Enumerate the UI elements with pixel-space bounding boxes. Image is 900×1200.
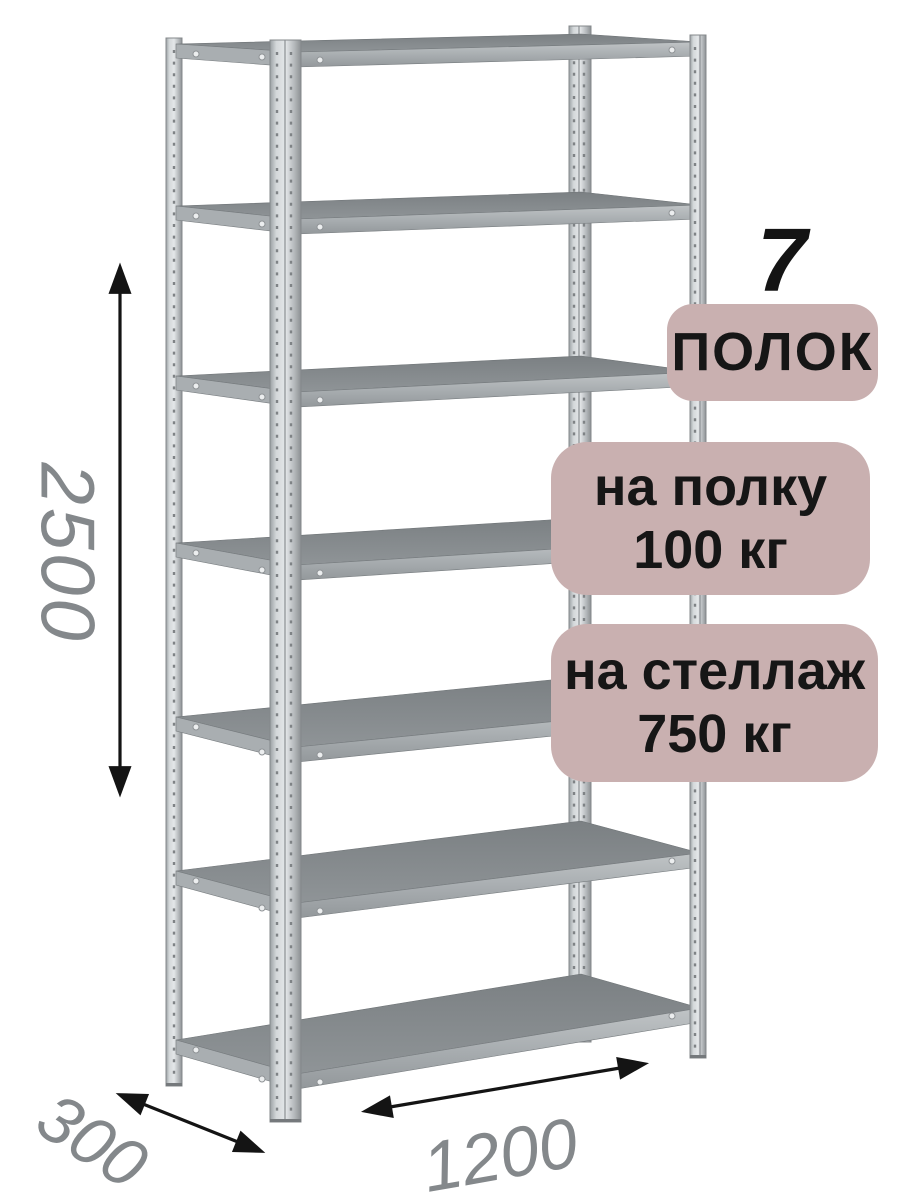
shelf-count-number: 7	[722, 216, 842, 306]
dimension-width: 1200	[390, 1068, 620, 1200]
shelf	[176, 821, 700, 918]
depth-dimension-label: 300	[24, 1078, 161, 1200]
badge-rack-load-line1: на стеллаж	[564, 640, 865, 703]
shelf	[176, 974, 700, 1089]
badge-shelf-load-line2: 100 кг	[633, 519, 788, 582]
dimension-height: 2500	[25, 292, 121, 768]
badge-shelf-count-label: ПОЛОК	[671, 321, 873, 384]
height-dimension-label: 2500	[25, 461, 110, 643]
width-dimension-label: 1200	[417, 1103, 584, 1200]
badge-rack-load-line2: 750 кг	[637, 703, 792, 766]
product-image: 2500 300 1200 7 ПОЛОК на полку 100 кг на…	[0, 0, 900, 1200]
shelf	[176, 34, 700, 67]
badge-shelf-load: на полку 100 кг	[551, 442, 870, 595]
dimension-depth: 300	[24, 1078, 238, 1200]
shelf	[176, 192, 700, 234]
shelf	[176, 356, 700, 407]
badge-shelf-count: ПОЛОК	[667, 304, 878, 401]
badge-rack-load: на стеллаж 750 кг	[551, 624, 878, 782]
badge-shelf-load-line1: на полку	[594, 456, 827, 519]
shelving-rack-illustration: 2500 300 1200	[0, 0, 900, 1200]
